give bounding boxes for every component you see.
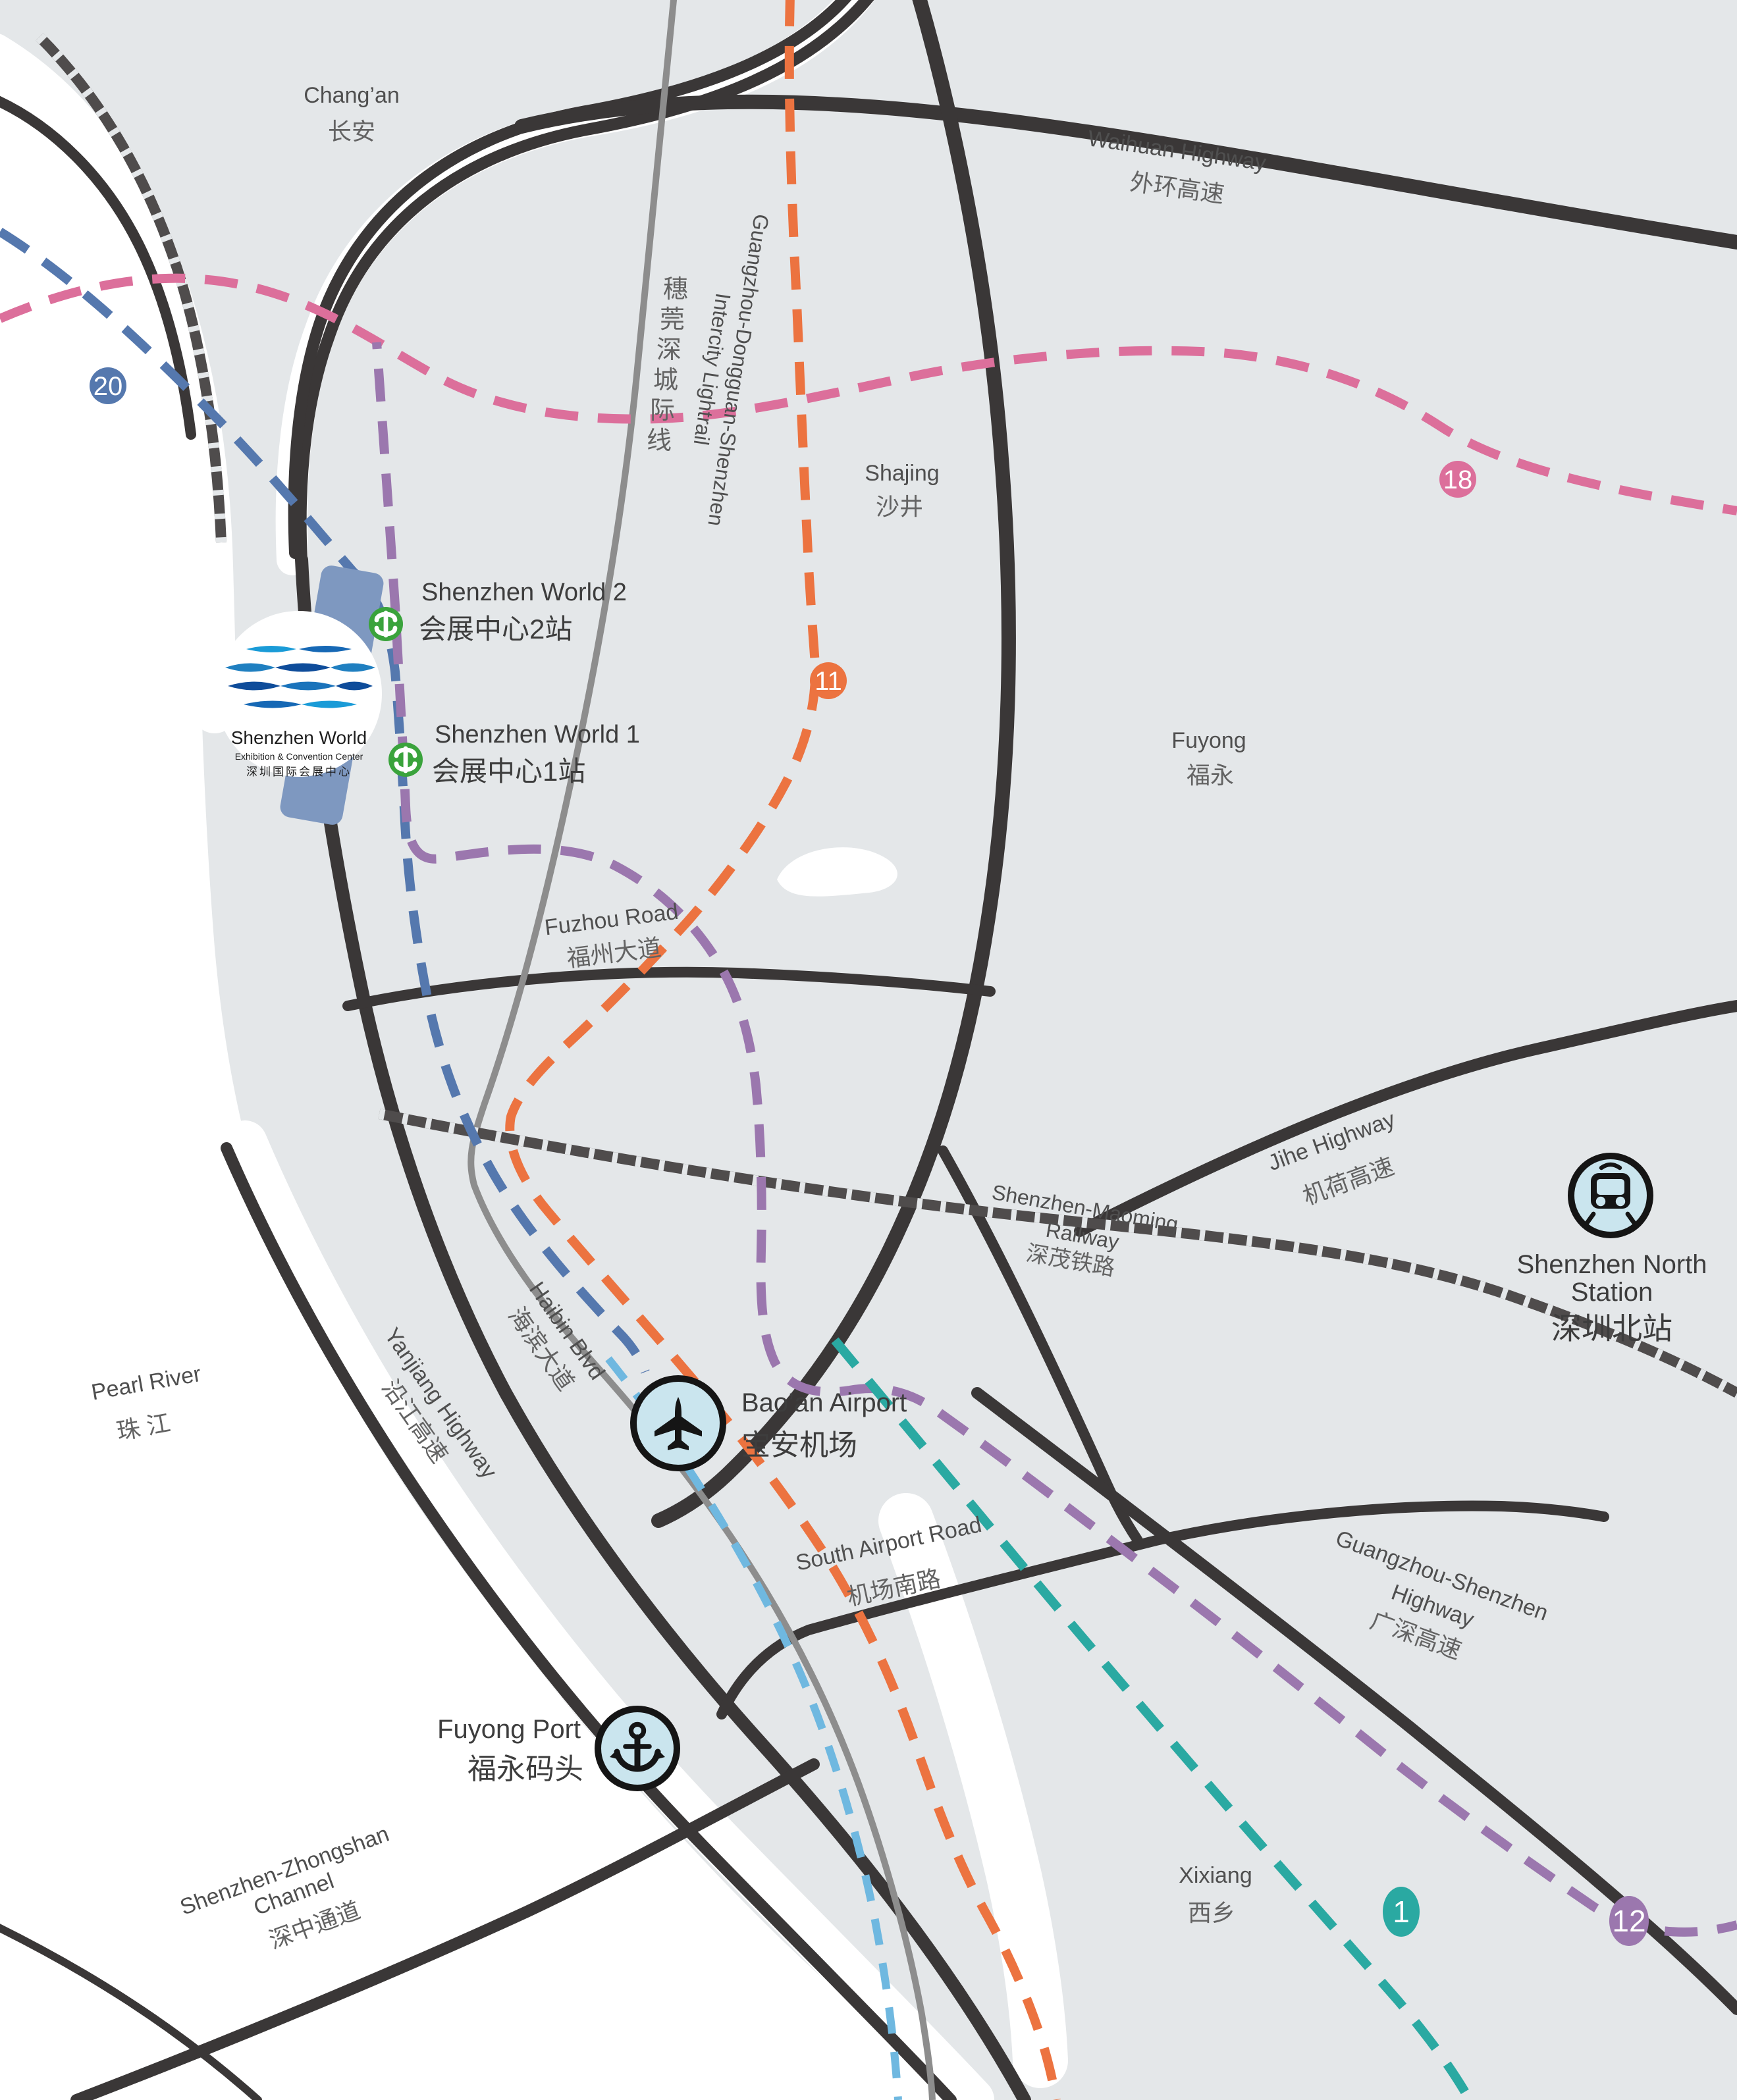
label-world2-en: Shenzhen World 2 [421,579,627,606]
line-badge-1: 1 [1383,1887,1420,1937]
label-port-zh: 福永码头 [468,1753,583,1785]
line-badge-11: 11 [810,662,847,699]
venue-logo-zh: 深圳国际会展中心 [246,766,352,778]
label-fuyong-zh: 福永 [1187,762,1234,789]
station-icon-world2 [369,607,403,641]
badge-number: 18 [1443,465,1473,494]
airport-icon [633,1378,723,1468]
label-world2-zh: 会展中心2站 [419,614,572,644]
train-station-icon [1571,1156,1650,1235]
label-xixiang-en: Xixiang [1179,1863,1252,1888]
label-world1-en: Shenzhen World 1 [435,721,640,748]
label-xixiang-zh: 西乡 [1188,1899,1235,1926]
label-world1-zh: 会展中心1站 [432,756,585,787]
label-port-en: Fuyong Port [437,1715,581,1744]
badge-number: 20 [94,372,123,401]
line-badge-18: 18 [1439,461,1476,498]
label-airport-en: Bao’an Airport [741,1388,907,1417]
label-north-zh: 深圳北站 [1551,1311,1672,1346]
label-shajing-zh: 沙井 [876,493,923,520]
label-north-en2: Station [1571,1278,1653,1307]
transit-map: Shenzhen World Exhibition & Convention C… [0,0,1737,2100]
label-north-en1: Shenzhen North [1516,1250,1707,1279]
badge-number: 12 [1612,1904,1645,1938]
line-badge-12: 12 [1609,1896,1649,1946]
label-airport-zh: 宝安机场 [741,1429,857,1461]
badge-number: 11 [815,667,842,696]
label-changan-zh: 长安 [328,118,375,145]
line-badge-20: 20 [90,367,126,404]
venue-logo-subtitle: Exhibition & Convention Center [235,751,363,762]
port-icon [598,1709,677,1788]
label-fuyong-en: Fuyong [1171,728,1246,753]
badge-number: 1 [1393,1895,1410,1929]
station-icon-world1 [388,743,423,777]
label-changan-en: Chang’an [304,83,400,108]
label-shajing-en: Shajing [865,461,939,486]
venue-logo-name: Shenzhen World [231,727,367,748]
venue-logo: Shenzhen World Exhibition & Convention C… [216,611,382,778]
